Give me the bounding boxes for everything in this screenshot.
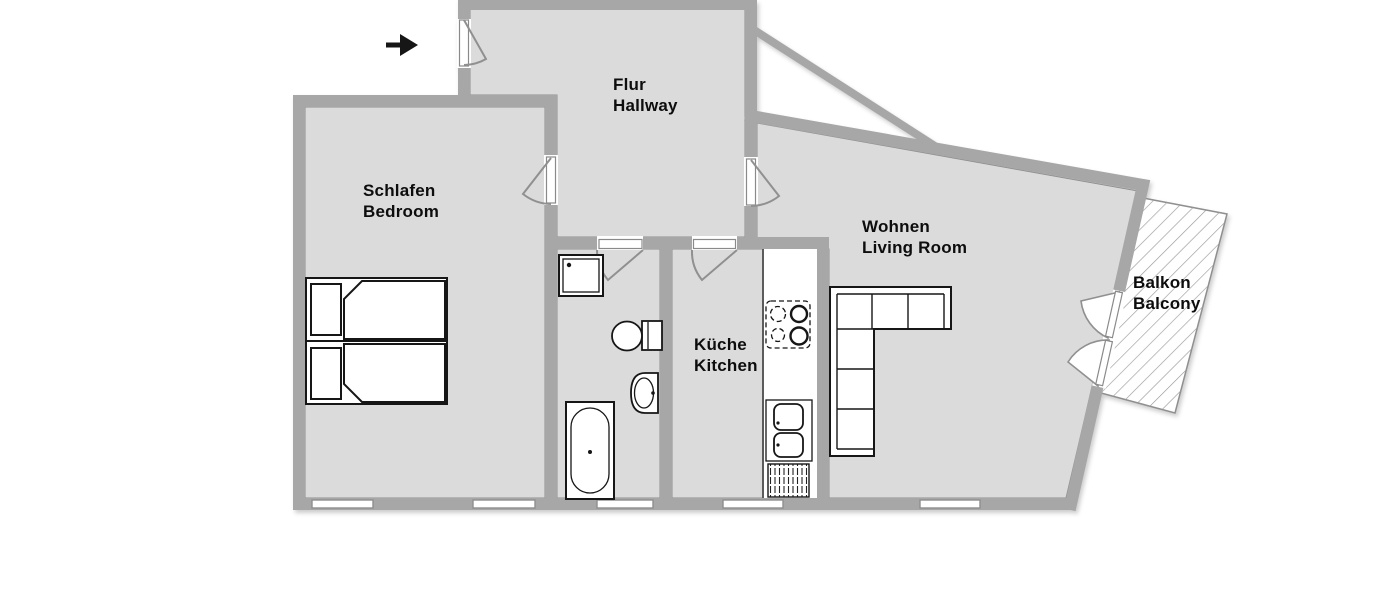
bedroom-window-right: [473, 500, 535, 508]
double-bed-icon: [306, 278, 447, 404]
bedroom-door-leaf: [547, 157, 556, 203]
room-label-living-room: Wohnen Living Room: [862, 216, 967, 258]
room-label-balcony-en: Balcony: [1133, 293, 1201, 314]
room-label-hallway-de: Flur: [613, 74, 678, 95]
room-label-bedroom-en: Bedroom: [363, 201, 439, 222]
room-label-balcony-de: Balkon: [1133, 272, 1201, 293]
bathroom-door-leaf: [599, 240, 642, 249]
washbasin-icon: [631, 373, 658, 413]
room-label-kitchen-en: Kitchen: [694, 355, 758, 376]
room-label-balcony: Balkon Balcony: [1133, 272, 1201, 314]
bed-pillow-bottom: [311, 348, 341, 399]
room-label-kitchen-de: Küche: [694, 334, 758, 355]
room-label-bedroom: Schlafen Bedroom: [363, 180, 439, 222]
kitchen-window: [723, 500, 783, 508]
bedroom-window-left: [312, 500, 373, 508]
toilet-icon: [612, 321, 662, 351]
living-room-door-leaf: [747, 159, 756, 205]
bed-pillow-top: [311, 284, 341, 335]
building-structure: [293, 0, 1227, 510]
room-label-living-room-de: Wohnen: [862, 216, 967, 237]
living-room-window: [920, 500, 980, 508]
bathtub-icon: [566, 402, 614, 499]
room-label-kitchen: Küche Kitchen: [694, 334, 758, 376]
room-label-bedroom-de: Schlafen: [363, 180, 439, 201]
room-label-hallway-en: Hallway: [613, 95, 678, 116]
kitchen-door-leaf: [694, 240, 736, 249]
room-label-living-room-en: Living Room: [862, 237, 967, 258]
radiator-icon: [768, 464, 809, 497]
bathroom-window: [597, 500, 653, 508]
floorplan-canvas: Flur Hallway Schlafen Bedroom Wohnen Liv…: [0, 0, 1400, 600]
room-label-hallway: Flur Hallway: [613, 74, 678, 116]
bed-blanket-bottom: [344, 344, 445, 402]
entrance-arrow-icon: [386, 34, 418, 56]
room-floors: [305, 8, 1138, 498]
shower-icon: [559, 255, 603, 296]
bed-blanket-top: [344, 281, 445, 339]
